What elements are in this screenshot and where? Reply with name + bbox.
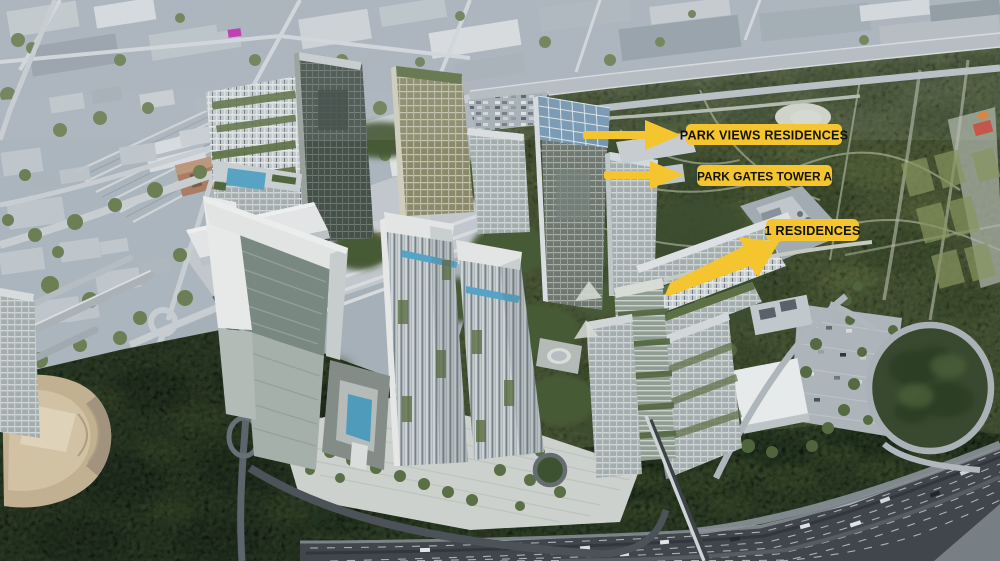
svg-text:PARK GATES TOWER A: PARK GATES TOWER A <box>697 170 832 184</box>
svg-text:1 RESIDENCES: 1 RESIDENCES <box>764 223 861 238</box>
svg-text:PARK VIEWS RESIDENCES: PARK VIEWS RESIDENCES <box>680 129 848 143</box>
